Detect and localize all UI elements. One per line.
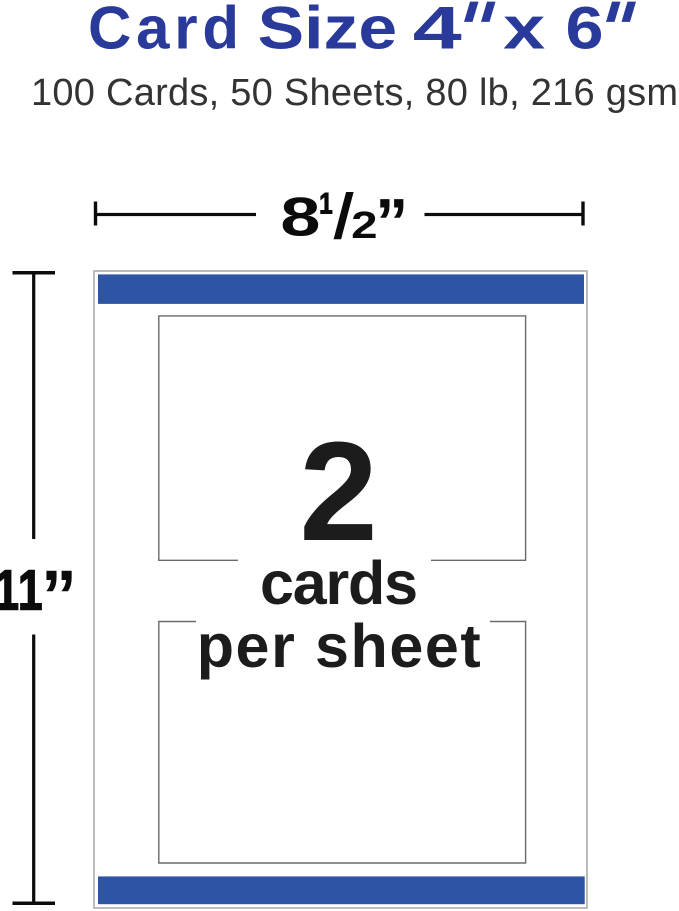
svg-text:”: ”: [41, 557, 77, 637]
svg-text:cards: cards: [260, 549, 418, 617]
svg-text:2: 2: [351, 205, 377, 247]
svg-text:1: 1: [18, 558, 43, 622]
svg-text:6: 6: [566, 0, 604, 62]
svg-text:1: 1: [319, 187, 333, 220]
svg-text:Card: Card: [88, 0, 239, 62]
svg-text:per sheet: per sheet: [197, 612, 481, 680]
svg-text:100 Cards, 50 Sheets, 80 lb, 2: 100 Cards, 50 Sheets, 80 lb, 216 gsm: [31, 72, 678, 114]
svg-text:4: 4: [413, 0, 463, 62]
svg-text:Size: Size: [258, 0, 397, 62]
svg-text:x: x: [503, 0, 545, 62]
svg-text:2: 2: [299, 412, 377, 570]
svg-text:1: 1: [0, 558, 19, 622]
svg-text:”: ”: [375, 184, 408, 258]
svg-text:8: 8: [280, 186, 320, 248]
